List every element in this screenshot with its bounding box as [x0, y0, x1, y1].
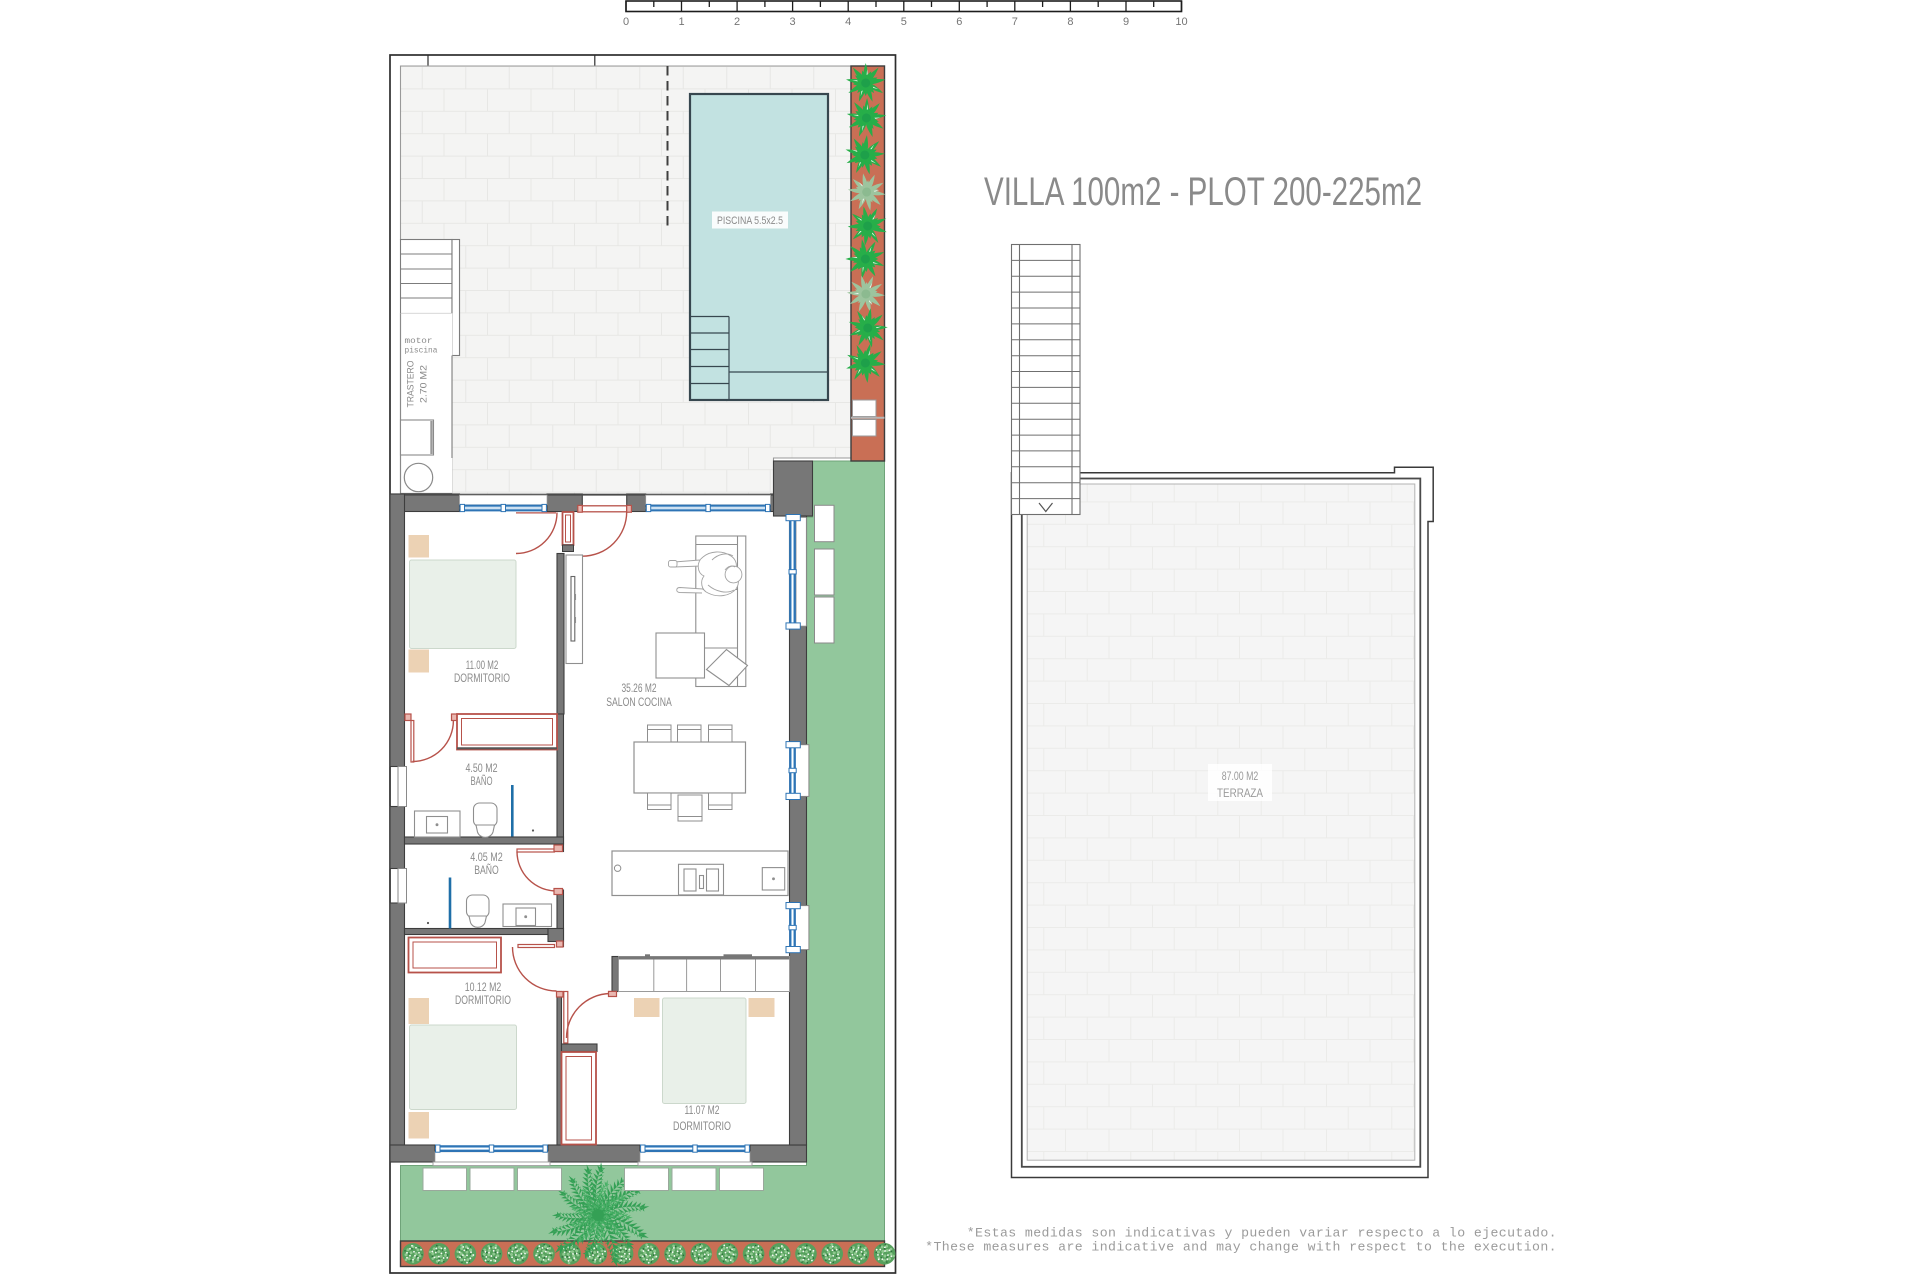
- svg-text:2: 2: [734, 16, 740, 28]
- svg-text:11.07 M2: 11.07 M2: [685, 1105, 720, 1117]
- svg-text:4.05 M2: 4.05 M2: [470, 852, 503, 864]
- svg-text:motor: motor: [405, 337, 433, 346]
- svg-text:3: 3: [790, 16, 796, 28]
- svg-text:6: 6: [956, 16, 962, 28]
- svg-text:TERRAZA: TERRAZA: [1217, 786, 1263, 800]
- svg-text:7: 7: [1012, 16, 1018, 28]
- svg-text:DORMITORIO: DORMITORIO: [673, 1121, 731, 1133]
- svg-text:10: 10: [1175, 16, 1187, 28]
- svg-text:9: 9: [1123, 16, 1129, 28]
- svg-text:DORMITORIO: DORMITORIO: [455, 995, 511, 1007]
- svg-text:35.26 M2: 35.26 M2: [622, 683, 657, 695]
- svg-text:BAÑO: BAÑO: [474, 864, 499, 877]
- svg-text:VILLA 100m2 - PLOT 200-225m2: VILLA 100m2 - PLOT 200-225m2: [984, 170, 1422, 214]
- svg-text:*Estas medidas son indicativas: *Estas medidas son indicativas y pueden …: [967, 1226, 1557, 1241]
- svg-text:1: 1: [678, 16, 684, 28]
- svg-text:4.50 M2: 4.50 M2: [466, 763, 498, 775]
- svg-text:DORMITORIO: DORMITORIO: [454, 673, 510, 685]
- svg-text:SALON COCINA: SALON COCINA: [606, 697, 672, 709]
- svg-text:piscina: piscina: [405, 346, 438, 356]
- svg-text:5: 5: [901, 16, 907, 28]
- svg-text:BAÑO: BAÑO: [471, 775, 493, 788]
- svg-text:87.00 M2: 87.00 M2: [1222, 769, 1259, 783]
- svg-text:8: 8: [1067, 16, 1073, 28]
- svg-text:*These measures are indicative: *These measures are indicative and may c…: [925, 1240, 1557, 1255]
- svg-text:10.12 M2: 10.12 M2: [465, 982, 502, 994]
- svg-text:PISCINA 5.5x2.5: PISCINA 5.5x2.5: [717, 215, 783, 227]
- svg-text:2.70 M2: 2.70 M2: [419, 365, 429, 403]
- svg-text:0: 0: [623, 16, 629, 28]
- svg-text:4: 4: [845, 16, 851, 28]
- svg-text:11.00 M2: 11.00 M2: [466, 660, 499, 672]
- svg-text:TRASTERO: TRASTERO: [406, 360, 416, 407]
